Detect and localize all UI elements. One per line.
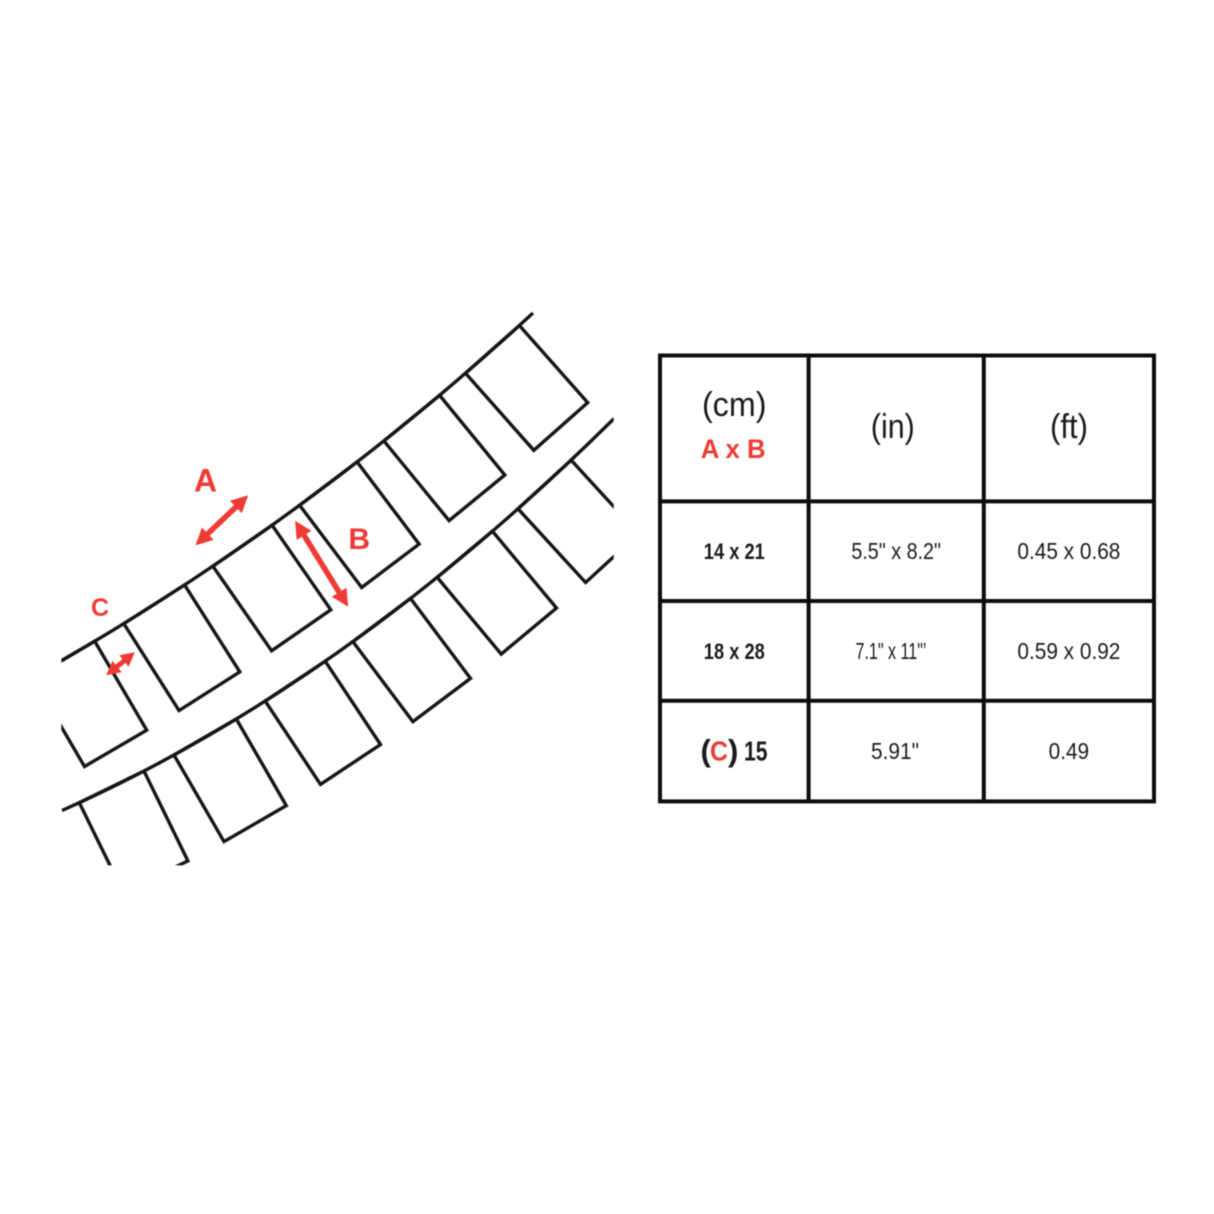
- svg-text:(cm): (cm): [702, 386, 767, 424]
- svg-text:18 x 28: 18 x 28: [704, 639, 765, 664]
- svg-text:C: C: [91, 594, 109, 622]
- svg-text:0.49: 0.49: [1049, 738, 1090, 764]
- svg-text:C: C: [710, 736, 728, 767]
- svg-text:A x B: A x B: [701, 434, 766, 464]
- svg-text:7.1" x 11"’: 7.1" x 11"’: [856, 638, 927, 664]
- svg-text:14 x 21: 14 x 21: [704, 539, 765, 564]
- svg-text:A: A: [194, 462, 217, 498]
- svg-text:): ): [728, 733, 738, 768]
- svg-text:B: B: [348, 523, 370, 556]
- svg-text:0.45 x 0.68: 0.45 x 0.68: [1017, 538, 1120, 564]
- svg-text:(in): (in): [871, 408, 915, 446]
- svg-text:(ft): (ft): [1050, 408, 1088, 446]
- svg-text:5.91": 5.91": [871, 738, 919, 764]
- svg-text:15: 15: [744, 736, 768, 767]
- svg-text:5.5" x 8.2": 5.5" x 8.2": [851, 538, 941, 564]
- svg-text:0.59 x 0.92: 0.59 x 0.92: [1017, 638, 1120, 664]
